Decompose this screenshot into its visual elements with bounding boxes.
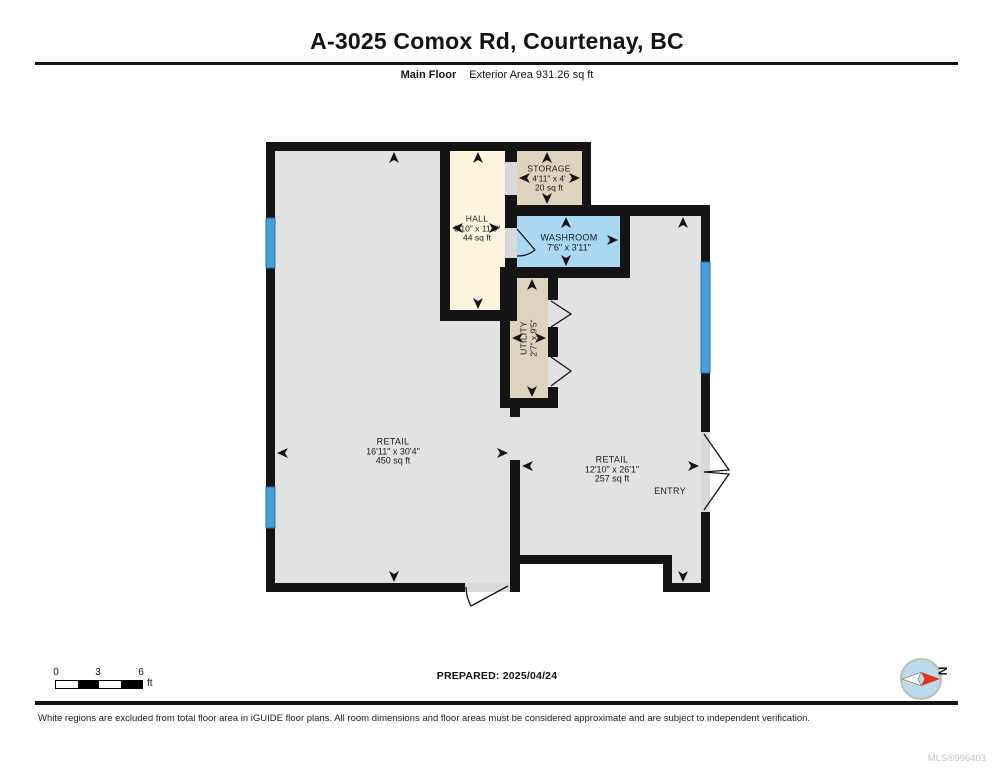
room-label-retail-left: RETAIL 16'11" x 30'4" 450 sq ft [366,438,420,467]
room-area: 450 sq ft [366,457,420,467]
wall-segment [500,398,558,408]
disclaimer-text: White regions are excluded from total fl… [38,713,810,724]
scale-bar [55,680,143,689]
scale-bar-segment [99,681,121,688]
wall-segment [548,327,558,357]
room-label-entry: ENTRY [654,487,686,497]
wall-segment [505,205,710,216]
wall-segment [440,151,450,321]
wall-segment [505,195,517,228]
scale-bar-segment [56,681,78,688]
room-area: 257 sq ft [585,475,639,485]
room-label-hall: HALL 3'10" x 11'6" 44 sq ft [454,215,500,244]
door-opening [465,583,510,592]
window [266,218,275,268]
wall-segment [266,142,591,151]
prepared-date: PREPARED: 2025/04/24 [437,670,558,682]
footer-divider [35,701,958,705]
scale-bar-segment [78,681,100,688]
wall-segment [505,151,517,162]
room-label-washroom: WASHROOM 7'6" x 3'11" [540,233,597,252]
room-label-retail-right: RETAIL 12'10" x 26'1" 257 sq ft [585,456,639,485]
door-opening [505,162,517,195]
compass-icon [897,655,949,703]
room-dims: 2'7" x 9'5" [529,319,539,356]
wall-segment [701,512,710,592]
mls-number: MLS®996403 [928,753,986,764]
wall-segment [548,278,558,300]
wall-segment [510,408,520,417]
scale-tick-3: 3 [95,667,101,678]
room-dims: 7'6" x 3'11" [540,243,597,253]
window [701,262,710,373]
floor-plan-page: A-3025 Comox Rd, Courtenay, BC Main Floo… [0,0,994,768]
room-area: 44 sq ft [454,234,500,244]
wall-segment [620,205,630,278]
wall-segment [500,267,510,408]
door-opening [505,228,517,258]
scale-unit-label: ft [147,678,153,689]
wall-segment [266,583,465,592]
wall-segment [510,555,672,564]
scale-bar-segment [121,681,143,688]
wall-segment [510,460,520,592]
room-label-storage: STORAGE 4'11" x 4' 20 sq ft [527,165,571,194]
scale-tick-6: 6 [138,667,144,678]
floor-plan-drawing [0,0,994,768]
window [266,487,275,528]
room-name: ENTRY [654,487,686,497]
room-label-utility: UTILITY 2'7" x 9'5" [519,319,538,356]
wall-segment [582,142,591,216]
compass-north-label: N [935,667,949,676]
scale-tick-0: 0 [53,667,59,678]
room-area: 20 sq ft [527,184,571,194]
wall-segment [500,267,630,278]
